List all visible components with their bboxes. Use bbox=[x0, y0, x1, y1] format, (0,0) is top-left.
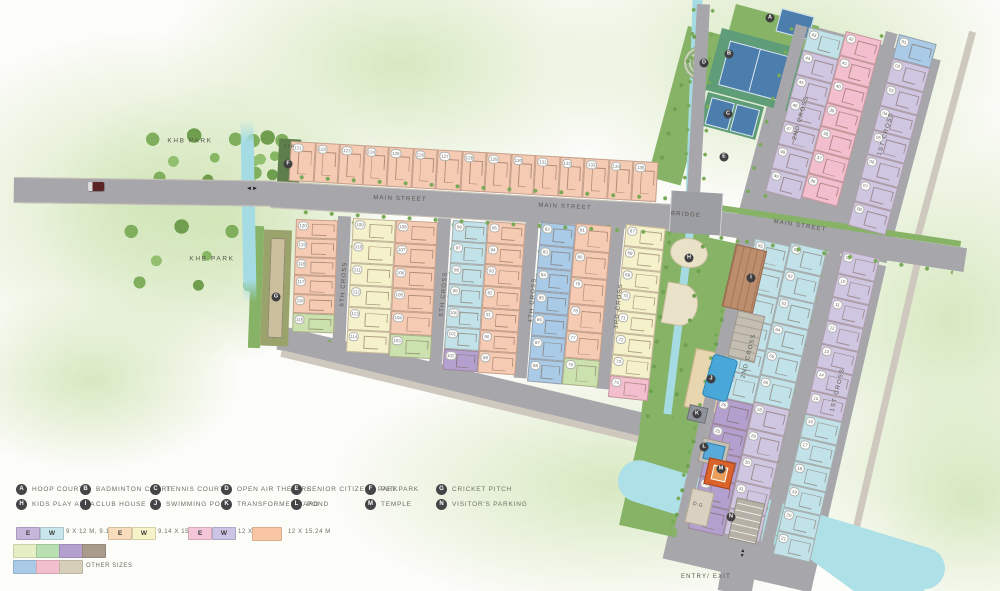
size-chip-west: W bbox=[212, 527, 236, 540]
plot-110[interactable]: 110 bbox=[351, 240, 395, 265]
plot-number: 104 bbox=[393, 313, 404, 323]
plot-number: 38 bbox=[820, 128, 832, 139]
plot-number: 115 bbox=[294, 315, 304, 324]
plot-113[interactable]: 113 bbox=[347, 307, 391, 332]
house-footprint bbox=[583, 284, 604, 302]
plot-89[interactable]: 89 bbox=[477, 351, 516, 375]
legend-letter-badge: I bbox=[80, 499, 91, 510]
plot-106[interactable]: 106 bbox=[392, 266, 435, 291]
plot-number: 133 bbox=[586, 160, 597, 170]
house-footprint bbox=[498, 270, 520, 285]
house-footprint bbox=[626, 360, 649, 376]
house-footprint bbox=[788, 539, 812, 558]
house-footprint bbox=[842, 305, 866, 324]
house-footprint bbox=[321, 151, 336, 176]
plot-80[interactable]: 80 bbox=[571, 250, 609, 280]
legend-item-hoop-court: AHOOP COURT bbox=[16, 484, 84, 495]
house-footprint bbox=[848, 64, 871, 84]
legend-letter-badge: H bbox=[16, 499, 27, 510]
plot-number: 114 bbox=[349, 332, 360, 342]
house-footprint bbox=[548, 274, 568, 290]
marker-hoop-court[interactable]: A bbox=[766, 14, 775, 23]
legend-label: PET PARK bbox=[381, 486, 419, 493]
plot-number: 64 bbox=[772, 324, 784, 335]
house-footprint bbox=[637, 252, 660, 268]
house-footprint bbox=[312, 224, 335, 237]
plot-number: 11 bbox=[832, 299, 844, 310]
legend-letter-badge: G bbox=[436, 484, 447, 495]
legend-item-tennis-court: CTENNIS COURT bbox=[150, 484, 224, 495]
plot-99[interactable]: 99 bbox=[447, 284, 483, 308]
plot-number: 45 bbox=[796, 76, 808, 87]
plot-number: 126 bbox=[415, 150, 426, 160]
plot-84[interactable]: 84 bbox=[535, 268, 572, 294]
plot-number: 49 bbox=[770, 170, 782, 181]
house-footprint bbox=[419, 157, 434, 182]
house-footprint bbox=[308, 318, 331, 331]
plot-number: 119 bbox=[297, 240, 307, 249]
legend-item-visitor-s-parking: NVISITOR'S PARKING bbox=[436, 499, 528, 510]
plot-102[interactable]: 102 bbox=[443, 348, 479, 372]
plot-number: 89 bbox=[480, 353, 491, 363]
plot-number: 128 bbox=[464, 153, 475, 163]
marker-kids-play-area[interactable]: H bbox=[685, 254, 694, 263]
plot-number: 79 bbox=[572, 279, 583, 289]
plot-number: 42 bbox=[845, 33, 857, 44]
plot-107[interactable]: 107 bbox=[394, 243, 437, 268]
plot-number: 72 bbox=[615, 334, 626, 344]
plot-115[interactable]: 115 bbox=[292, 313, 335, 333]
plot-117[interactable]: 117 bbox=[293, 275, 336, 295]
house-footprint bbox=[726, 405, 749, 426]
marker-open-air-theatre[interactable]: D bbox=[700, 59, 709, 68]
house-footprint bbox=[468, 160, 483, 185]
plot-number: 78 bbox=[570, 306, 581, 316]
plot-97[interactable]: 97 bbox=[450, 241, 486, 265]
plot-number: 93 bbox=[486, 266, 497, 276]
house-footprint bbox=[763, 410, 786, 431]
plot-number: 74 bbox=[611, 378, 622, 388]
house-footprint bbox=[787, 304, 810, 325]
plot-87[interactable]: 87 bbox=[529, 336, 566, 362]
house-footprint bbox=[495, 314, 517, 329]
house-footprint bbox=[769, 384, 792, 405]
plot-77[interactable]: 77 bbox=[564, 331, 602, 361]
plot-number: 48 bbox=[777, 147, 789, 158]
plot-number: 106 bbox=[395, 268, 406, 278]
legend-item-pet-park: FPET PARK bbox=[365, 484, 419, 495]
plot-number: 39 bbox=[826, 105, 838, 116]
plot-number: 20 bbox=[783, 510, 795, 521]
house-footprint bbox=[901, 67, 925, 87]
house-footprint bbox=[493, 335, 515, 350]
plot-number: 88 bbox=[530, 361, 541, 371]
house-footprint bbox=[732, 379, 755, 400]
other-size-swatch bbox=[82, 544, 106, 558]
house-footprint bbox=[580, 311, 601, 329]
house-footprint bbox=[798, 492, 822, 511]
house-footprint bbox=[786, 153, 809, 173]
legend-letter-badge: K bbox=[221, 499, 232, 510]
plot-number: 01 bbox=[898, 36, 910, 47]
plot-number: 116 bbox=[295, 296, 305, 305]
plot-number: 63 bbox=[778, 298, 790, 309]
house-footprint bbox=[465, 226, 485, 241]
plot-number: 111 bbox=[352, 265, 362, 275]
house-footprint bbox=[297, 150, 312, 175]
house-footprint bbox=[816, 182, 839, 202]
house-footprint bbox=[460, 290, 480, 305]
house-footprint bbox=[756, 437, 779, 458]
plot-74[interactable]: 74 bbox=[608, 375, 650, 401]
legend-label: POND bbox=[307, 501, 329, 508]
badminton-court-2 bbox=[730, 104, 760, 137]
legend-letter-badge: B bbox=[80, 484, 91, 495]
house-footprint bbox=[310, 280, 333, 293]
plot-number: 86 bbox=[534, 315, 545, 325]
plot-number: 31 bbox=[735, 483, 747, 494]
house-footprint bbox=[835, 111, 858, 131]
plot-number: 102 bbox=[445, 350, 456, 360]
house-footprint bbox=[793, 516, 817, 535]
plot-number: 08 bbox=[853, 204, 865, 215]
map-label: KHB PARK bbox=[167, 138, 212, 145]
marker-pet-park[interactable]: F bbox=[284, 160, 293, 169]
house-footprint bbox=[876, 163, 900, 183]
plot-number: 02 bbox=[892, 60, 904, 71]
house-footprint bbox=[585, 257, 606, 275]
house-footprint bbox=[456, 354, 476, 369]
house-footprint bbox=[368, 246, 392, 261]
house-footprint bbox=[566, 166, 581, 191]
house-footprint bbox=[817, 36, 840, 56]
plot-number: 66 bbox=[760, 377, 772, 388]
house-footprint bbox=[829, 135, 852, 155]
plot-number: 135 bbox=[635, 163, 646, 173]
house-footprint bbox=[459, 311, 479, 326]
plot-number: 101 bbox=[447, 329, 458, 339]
legend-letter-badge: F bbox=[365, 484, 376, 495]
house-footprint bbox=[406, 317, 430, 332]
house-footprint bbox=[363, 335, 387, 350]
plot-number: 25 bbox=[712, 425, 724, 436]
plot-number: 123 bbox=[341, 146, 352, 156]
other-size-swatch bbox=[59, 544, 83, 558]
house-footprint bbox=[630, 317, 653, 333]
plot-number: 87 bbox=[532, 338, 543, 348]
plot-number: 16 bbox=[805, 416, 817, 427]
cricket-pitch-lane bbox=[267, 238, 285, 338]
house-footprint bbox=[405, 340, 429, 355]
plot-number: 41 bbox=[839, 57, 851, 68]
marker-tennis-court[interactable]: C bbox=[724, 110, 733, 119]
plot-number: 76 bbox=[565, 360, 576, 370]
plot-111[interactable]: 111 bbox=[349, 263, 393, 288]
marker-visitors-parking[interactable]: N bbox=[727, 513, 736, 522]
marker-pond[interactable]: L bbox=[700, 443, 709, 452]
marker-club-house[interactable]: I bbox=[747, 274, 756, 283]
site-master-plan: ◄► ▲▼ 1211221231241251261271281291301311… bbox=[0, 0, 1000, 591]
plot-91[interactable]: 91 bbox=[480, 308, 519, 332]
house-footprint bbox=[628, 339, 651, 355]
plot-number: 120 bbox=[298, 221, 309, 230]
map-label: ENTRY/ EXIT bbox=[681, 574, 731, 580]
marker-transformer-yard[interactable]: K bbox=[693, 410, 702, 419]
house-footprint bbox=[822, 159, 845, 179]
two-way-arrow-icon: ◄► bbox=[246, 186, 258, 192]
plot-number: 100 bbox=[448, 308, 459, 318]
house-footprint bbox=[793, 278, 816, 299]
plot-101[interactable]: 101 bbox=[444, 327, 480, 351]
plot-number: 06 bbox=[866, 156, 878, 167]
house-footprint bbox=[444, 159, 459, 184]
house-footprint bbox=[578, 338, 599, 356]
legend-item-swimming-pool: JSWIMMING POOL bbox=[150, 499, 231, 510]
house-footprint bbox=[540, 365, 560, 381]
plot-94[interactable]: 94 bbox=[485, 243, 524, 267]
plot-number: 30 bbox=[741, 457, 753, 468]
legend-letter-badge: J bbox=[150, 499, 161, 510]
other-size-swatch bbox=[36, 560, 60, 574]
plot-number: 108 bbox=[397, 222, 408, 232]
plot-number: 131 bbox=[537, 157, 548, 167]
house-footprint bbox=[311, 243, 334, 256]
plot-88[interactable]: 88 bbox=[527, 359, 564, 385]
legend-label: CRICKET PITCH bbox=[452, 486, 512, 493]
house-footprint bbox=[815, 422, 839, 441]
house-footprint bbox=[493, 161, 508, 186]
size-text: 12 X 15.24 M bbox=[288, 527, 331, 538]
house-footprint bbox=[411, 226, 435, 241]
house-footprint bbox=[811, 59, 834, 79]
house-footprint bbox=[462, 268, 482, 283]
plot-108[interactable]: 108 bbox=[395, 220, 438, 245]
plot-number: 15 bbox=[810, 393, 822, 404]
plot-92[interactable]: 92 bbox=[482, 286, 521, 310]
map-label: KHB PARK bbox=[189, 256, 234, 263]
house-footprint bbox=[750, 464, 773, 485]
house-footprint bbox=[395, 156, 410, 181]
legend-item-temple: MTEMPLE bbox=[365, 499, 412, 510]
plot-number: 110 bbox=[353, 242, 364, 252]
house-footprint bbox=[895, 91, 919, 111]
legend-label: VISITOR'S PARKING bbox=[452, 501, 528, 508]
size-chip-west: W bbox=[40, 527, 64, 540]
plot-number: 14 bbox=[815, 369, 827, 380]
plot-strip-6th-cross-east: 109110111112113114 bbox=[346, 218, 396, 354]
plot-number: 97 bbox=[453, 244, 464, 254]
legend-letter-badge: D bbox=[221, 484, 232, 495]
house-footprint bbox=[408, 294, 432, 309]
plot-79[interactable]: 79 bbox=[569, 277, 607, 307]
legend-label: TENNIS COURT bbox=[166, 486, 224, 493]
marker-senior-citizens-park[interactable]: E bbox=[720, 153, 729, 162]
plot-103[interactable]: 103 bbox=[389, 334, 432, 359]
house-footprint bbox=[908, 43, 932, 63]
house-footprint bbox=[576, 365, 597, 383]
house-footprint bbox=[632, 295, 655, 311]
plot-85[interactable]: 85 bbox=[533, 290, 570, 316]
legend-item-pond: LPOND bbox=[291, 499, 329, 510]
house-footprint bbox=[775, 357, 798, 378]
house-footprint bbox=[410, 249, 434, 264]
size-chip-west: W bbox=[132, 527, 156, 540]
house-footprint bbox=[492, 357, 514, 372]
house-footprint bbox=[836, 329, 860, 348]
size-chip-east: E bbox=[108, 527, 132, 540]
other-size-swatch bbox=[13, 544, 37, 558]
plot-120[interactable]: 120 bbox=[295, 219, 338, 239]
plot-number: 44 bbox=[802, 53, 814, 64]
plot-112[interactable]: 112 bbox=[348, 285, 392, 310]
house-footprint bbox=[841, 87, 864, 107]
legend-letter-badge: C bbox=[150, 484, 161, 495]
plot-number: 83 bbox=[540, 247, 551, 257]
plot-118[interactable]: 118 bbox=[294, 257, 337, 277]
plot-number: 03 bbox=[885, 84, 897, 95]
plot-116[interactable]: 116 bbox=[293, 294, 336, 314]
house-footprint bbox=[542, 164, 557, 189]
plot-number: 94 bbox=[488, 245, 499, 255]
size-swatch bbox=[252, 527, 282, 541]
size-chip-east: E bbox=[188, 527, 212, 540]
house-footprint bbox=[546, 297, 566, 313]
legend-item-cricket-pitch: GCRICKET PITCH bbox=[436, 484, 512, 495]
plot-76[interactable]: 76 bbox=[562, 357, 600, 387]
house-footprint bbox=[809, 446, 833, 465]
plot-number: 92 bbox=[485, 288, 496, 298]
house-footprint bbox=[615, 168, 630, 193]
plot-strip-5th-cross-west: 108107106105104103 bbox=[389, 220, 438, 359]
plot-number: 117 bbox=[296, 278, 306, 287]
house-footprint bbox=[463, 247, 483, 262]
plot-number: 118 bbox=[296, 259, 306, 268]
plot-number: 105 bbox=[394, 290, 405, 300]
house-footprint bbox=[310, 262, 333, 275]
plot-number: 19 bbox=[788, 486, 800, 497]
other-size-swatch bbox=[13, 560, 37, 574]
plot-number: 12 bbox=[826, 323, 838, 334]
plot-number: 99 bbox=[450, 286, 461, 296]
house-footprint bbox=[542, 342, 562, 358]
marker-swimming-pool[interactable]: J bbox=[707, 375, 716, 384]
plot-number: 125 bbox=[390, 149, 401, 159]
plot-number: 62 bbox=[784, 271, 796, 282]
house-footprint bbox=[369, 224, 393, 239]
plot-number: 36 bbox=[807, 176, 819, 187]
plot-number: 113 bbox=[350, 309, 361, 319]
house-footprint bbox=[550, 251, 570, 267]
legend-letter-badge: A bbox=[16, 484, 27, 495]
house-footprint bbox=[309, 299, 332, 312]
truck-icon bbox=[88, 182, 104, 191]
cricket-pitch-strip[interactable] bbox=[260, 230, 292, 347]
plot-number: 73 bbox=[613, 356, 624, 366]
legend-letter-badge: N bbox=[436, 499, 447, 510]
house-footprint bbox=[781, 331, 804, 352]
house-footprint bbox=[854, 40, 877, 60]
house-footprint bbox=[847, 282, 871, 301]
plot-number: 77 bbox=[568, 333, 579, 343]
plot-86[interactable]: 86 bbox=[531, 313, 568, 339]
plot-number: 10 bbox=[837, 276, 849, 287]
plot-98[interactable]: 98 bbox=[449, 263, 485, 287]
legend-label: CLUB HOUSE bbox=[96, 501, 146, 508]
plot-number: 103 bbox=[391, 336, 402, 346]
plot-number: 129 bbox=[488, 154, 499, 164]
plot-strip-6th-cross-west: 120119118117116115 bbox=[292, 219, 338, 333]
plot-number: 122 bbox=[317, 145, 328, 155]
plot-100[interactable]: 100 bbox=[446, 305, 482, 329]
plot-105[interactable]: 105 bbox=[391, 288, 434, 313]
house-footprint bbox=[635, 274, 658, 290]
plot-number: 80 bbox=[575, 252, 586, 262]
house-footprint bbox=[804, 469, 828, 488]
plot-number: 37 bbox=[813, 152, 825, 163]
plot-number: 112 bbox=[351, 287, 362, 297]
house-footprint bbox=[496, 292, 518, 307]
plot-number: 107 bbox=[396, 245, 407, 255]
legend-label: TEMPLE bbox=[381, 501, 412, 508]
plot-number: 127 bbox=[439, 152, 450, 162]
plot-number: 98 bbox=[451, 265, 462, 275]
plot-number: 109 bbox=[354, 220, 365, 230]
plot-number: 17 bbox=[799, 439, 811, 450]
map-label: STP bbox=[283, 144, 295, 151]
legend-letter-badge: M bbox=[365, 499, 376, 510]
plot-104[interactable]: 104 bbox=[390, 311, 433, 336]
house-footprint bbox=[346, 153, 361, 178]
plot-83[interactable]: 83 bbox=[537, 245, 574, 271]
plot-119[interactable]: 119 bbox=[295, 238, 338, 258]
main-street-west[interactable] bbox=[14, 177, 276, 207]
house-footprint bbox=[517, 163, 532, 188]
plot-number: 90 bbox=[482, 331, 493, 341]
plot-number: 29 bbox=[748, 430, 760, 441]
plot-114[interactable]: 114 bbox=[346, 329, 390, 354]
plot-number: 28 bbox=[754, 404, 766, 415]
marker-badminton-court[interactable]: B bbox=[725, 50, 734, 59]
house-footprint bbox=[366, 269, 390, 284]
plot-number: 124 bbox=[366, 147, 377, 157]
marker-temple[interactable]: M bbox=[717, 465, 726, 474]
plot-number: 84 bbox=[538, 270, 549, 280]
plot-number: 85 bbox=[536, 292, 547, 302]
house-footprint bbox=[365, 291, 389, 306]
plot-number: 07 bbox=[860, 180, 872, 191]
plot-78[interactable]: 78 bbox=[567, 304, 605, 334]
plot-number: 40 bbox=[832, 81, 844, 92]
house-footprint bbox=[457, 333, 477, 348]
plot-93[interactable]: 93 bbox=[483, 264, 522, 288]
size-chip-east: E bbox=[16, 527, 40, 540]
legend-letter-badge: L bbox=[291, 499, 302, 510]
plot-number: 68 bbox=[625, 248, 636, 258]
house-footprint bbox=[370, 154, 385, 179]
plot-number: 18 bbox=[794, 463, 806, 474]
legend-label: HOOP COURT bbox=[32, 486, 84, 493]
plot-109[interactable]: 109 bbox=[352, 218, 396, 243]
plot-number: 69 bbox=[622, 269, 633, 279]
plot-number: 65 bbox=[766, 351, 778, 362]
other-size-swatch bbox=[36, 544, 60, 558]
marker-cricket-pitch[interactable]: G bbox=[272, 293, 281, 302]
legend-item-club-house: ICLUB HOUSE bbox=[80, 499, 146, 510]
house-footprint bbox=[863, 211, 887, 231]
plot-90[interactable]: 90 bbox=[479, 329, 518, 353]
plot-number: 91 bbox=[483, 310, 494, 320]
house-footprint bbox=[869, 187, 893, 207]
